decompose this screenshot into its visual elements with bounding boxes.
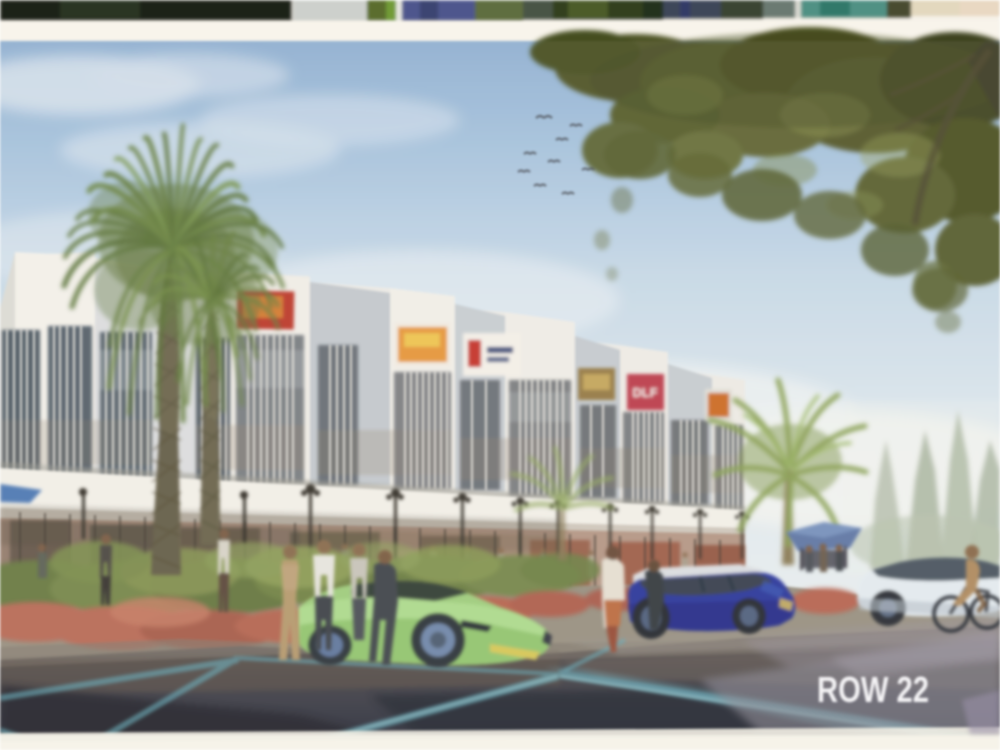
svg-text:ROW 22: ROW 22 [817,669,929,710]
